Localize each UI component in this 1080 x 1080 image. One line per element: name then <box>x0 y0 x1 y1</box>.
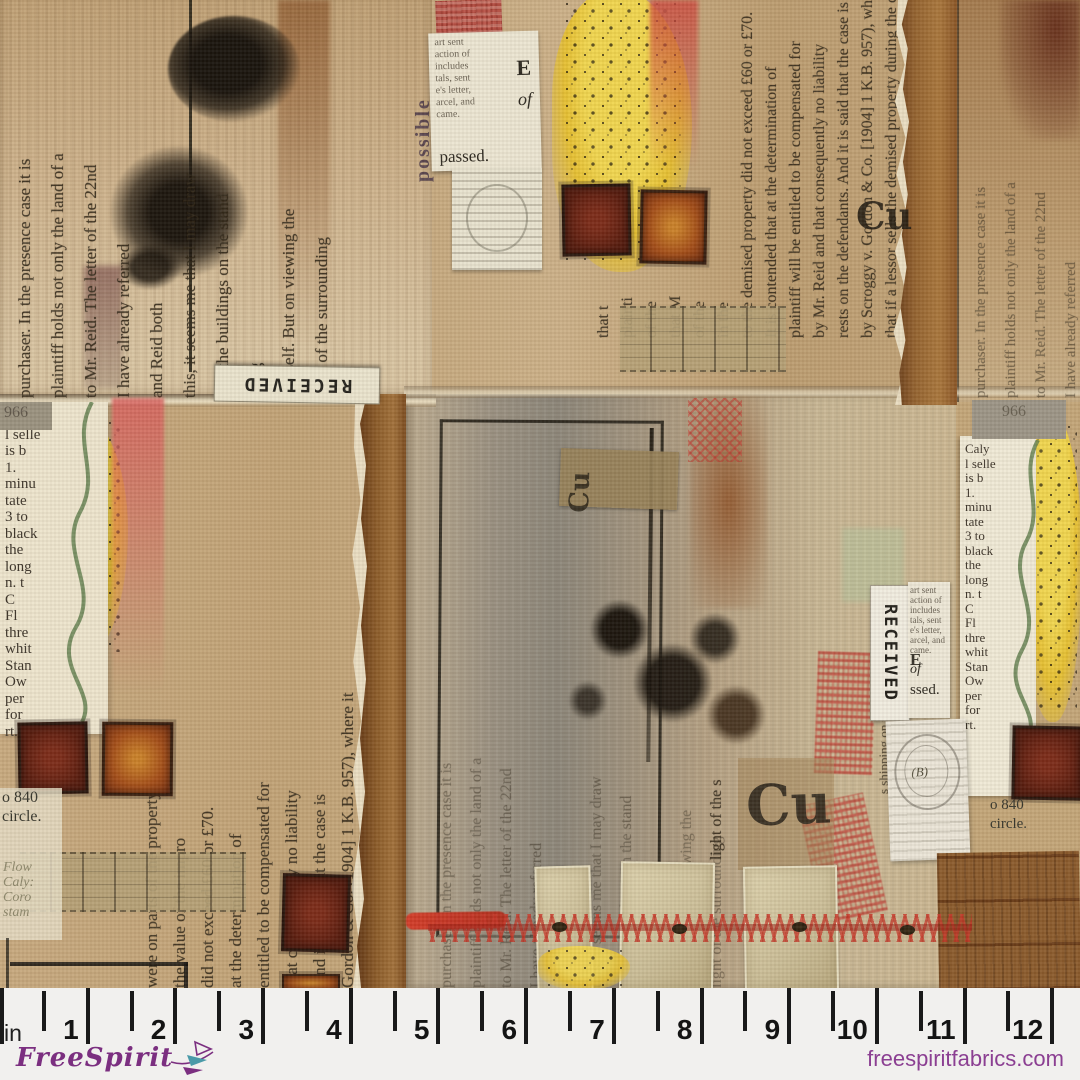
pink-paint-streak <box>112 398 164 694</box>
postmark-scrap: (B) <box>886 719 971 862</box>
ruler-number: 3 <box>238 1014 254 1046</box>
ruler-inch-cell: 10 <box>789 988 877 1080</box>
ruler-half-tick <box>130 991 134 1031</box>
ruler-number: 6 <box>502 1014 518 1046</box>
ruler-inch-cell: 6 <box>438 988 526 1080</box>
paper-scrap-passed: art sentaction ofincludestals, sente's l… <box>428 31 542 172</box>
black-frame-line <box>10 962 188 966</box>
ruler-number: 7 <box>589 1014 605 1046</box>
ruler-inch-cell: 8 <box>614 988 702 1080</box>
fabric-swatch-photo: purchaser. In the presence case it ispla… <box>0 0 1080 1080</box>
received-label: RECEIVED <box>214 365 381 405</box>
stitch-knot <box>900 925 915 935</box>
inch-ruler: 1 2 3 4 <box>0 988 1080 1080</box>
page-fragment-text: o 840circle. <box>990 796 1027 834</box>
ruler-half-tick <box>480 991 484 1031</box>
ruler-half-tick <box>568 991 572 1031</box>
stitch-knot <box>552 922 567 932</box>
stitched-tape <box>620 306 786 372</box>
red-paint-streak <box>650 0 698 170</box>
ruler-inch-cell: 5 <box>351 988 439 1080</box>
ruler-number: 9 <box>765 1014 781 1046</box>
cu-large-fragment: Cu <box>745 771 833 840</box>
page-number: 966 <box>972 400 1066 439</box>
freespirit-kite-icon <box>169 1040 215 1076</box>
rotated-page-text-right: purchaser. In the presence case it ispla… <box>966 0 1080 398</box>
red-stitch-band <box>428 914 972 942</box>
rotated-page-text-left: purchaser. In the presence case it ispla… <box>8 0 354 398</box>
collage-fabric: purchaser. In the presence case it ispla… <box>0 0 1080 988</box>
ruler-half-tick <box>831 991 835 1031</box>
vine-doodle <box>1012 440 1048 740</box>
orange-square-partial <box>282 974 340 988</box>
ruler-number: 5 <box>414 1014 430 1046</box>
ruler-half-tick <box>42 991 46 1031</box>
received-label-vertical: RECEIVED <box>870 585 910 721</box>
ruler-inch-cell: 7 <box>526 988 614 1080</box>
ruler-half-tick <box>656 991 660 1031</box>
ruler-half-tick <box>919 991 923 1031</box>
page-fragment-text: o 840circle. <box>2 788 42 826</box>
ruler-number: 10 <box>837 1014 868 1046</box>
ruler-number: 11 <box>926 1014 956 1046</box>
ruler-number: 12 <box>1012 1014 1043 1046</box>
ruler-half-tick <box>743 991 747 1031</box>
yellow-paint-splash <box>538 946 630 988</box>
website-url: freespiritfabrics.com <box>867 1046 1064 1072</box>
paper-scrap-stamped <box>452 168 542 270</box>
ruler-half-tick <box>1006 991 1010 1031</box>
ruler-half-tick <box>393 991 397 1031</box>
maroon-square <box>561 183 631 256</box>
cu-fragment: Cu <box>856 194 912 238</box>
freespirit-logo-text: FreeSpirit <box>16 1043 173 1073</box>
ruler-number: 4 <box>326 1014 342 1046</box>
paper-scrap-e: art sentaction ofincludestals, sente's l… <box>908 582 950 718</box>
page-number: 966 <box>0 402 52 430</box>
stitch-knot <box>672 924 687 934</box>
flower-index-text: FlowCaly:Corostam <box>3 860 34 920</box>
maroon-square <box>1011 725 1080 800</box>
black-frame-line <box>184 962 188 988</box>
ruler-number: 8 <box>677 1014 693 1046</box>
red-crosshatch-stamp <box>688 398 742 462</box>
ruler-inch-cell: 4 <box>263 988 351 1080</box>
vine-doodle <box>62 402 106 722</box>
maroon-square <box>281 873 351 953</box>
freespirit-logo: FreeSpirit <box>16 1040 215 1076</box>
ruler-half-tick <box>217 991 221 1031</box>
ruler-half-tick <box>305 991 309 1031</box>
stitch-knot <box>792 922 807 932</box>
orange-square <box>639 189 707 264</box>
cu-tape-label: Cu <box>559 448 679 510</box>
black-frame-line <box>6 938 9 988</box>
ruler-inch-cell: 9 <box>702 988 790 1080</box>
ruler-major-tick <box>1050 988 1054 1044</box>
maroon-square <box>17 721 88 794</box>
ink-splatter <box>556 576 768 754</box>
red-text-stamp <box>814 651 876 775</box>
scrap-tiny-text: art sentaction ofincludestals, sente's l… <box>910 585 948 655</box>
orange-square <box>102 722 174 797</box>
